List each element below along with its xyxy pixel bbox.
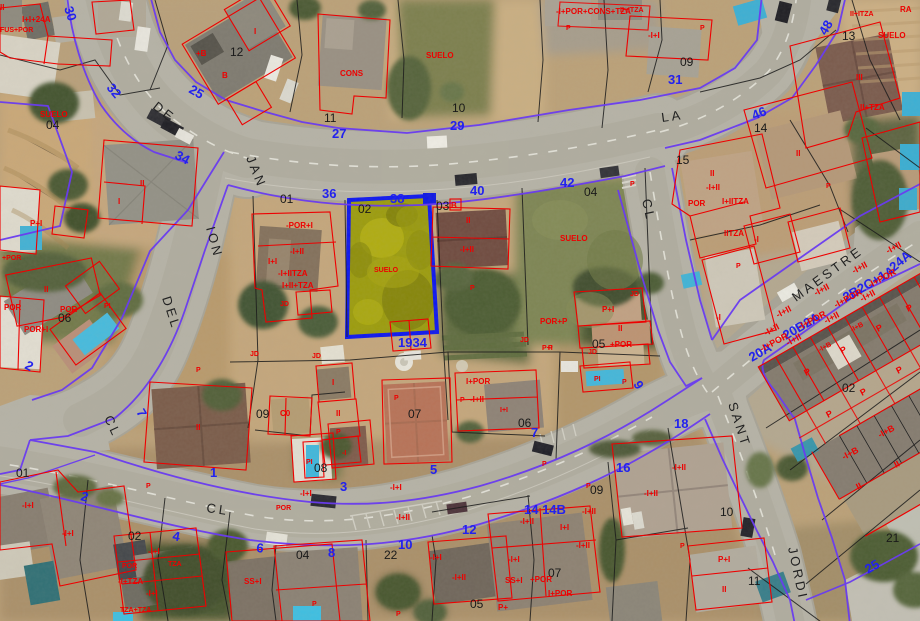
svg-text:II: II (618, 324, 622, 333)
svg-text:07: 07 (408, 407, 422, 421)
svg-text:POR: POR (688, 199, 706, 208)
svg-text:SS+I: SS+I (505, 576, 523, 585)
svg-text:02: 02 (842, 381, 856, 395)
svg-text:P: P (312, 601, 317, 608)
svg-text:1934: 1934 (398, 335, 428, 350)
svg-text:PI: PI (594, 376, 601, 383)
svg-text:03: 03 (436, 199, 450, 213)
svg-text:04: 04 (296, 548, 310, 562)
svg-text:II+TZA: II+TZA (860, 103, 885, 112)
svg-text:09: 09 (256, 407, 270, 421)
svg-text:8: 8 (328, 545, 335, 560)
svg-text:POR: POR (4, 303, 22, 312)
svg-text:JD: JD (280, 301, 289, 308)
svg-text:-POR+I: -POR+I (286, 221, 313, 230)
svg-text:21: 21 (886, 531, 900, 545)
svg-text:7: 7 (531, 425, 538, 440)
svg-text:+POR: +POR (2, 255, 21, 262)
svg-text:09: 09 (680, 55, 694, 69)
svg-text:14: 14 (754, 121, 768, 135)
svg-text:P: P (196, 367, 201, 374)
svg-text:P: P (146, 483, 151, 490)
svg-text:SUELO: SUELO (426, 51, 454, 60)
svg-text:II+ITZA: II+ITZA (620, 7, 644, 14)
svg-text:04: 04 (46, 118, 60, 132)
svg-text:01: 01 (16, 466, 30, 480)
svg-text:II: II (796, 149, 800, 158)
svg-text:02: 02 (128, 529, 142, 543)
svg-text:42: 42 (560, 175, 574, 190)
svg-text:16: 16 (616, 460, 630, 475)
svg-text:-I+I: -I+I (146, 589, 158, 598)
svg-text:-I+II: -I+II (644, 489, 658, 498)
svg-text:I+POR: I+POR (548, 589, 572, 598)
svg-text:TZA: TZA (168, 561, 182, 568)
svg-text:POR: POR (60, 305, 78, 314)
svg-text:B: B (451, 201, 457, 210)
svg-text:-I+II: -I+II (470, 395, 484, 404)
svg-text:PI: PI (306, 459, 313, 466)
svg-text:-I+II: -I+II (460, 245, 474, 254)
svg-text:II: II (466, 216, 470, 225)
svg-text:SS+I: SS+I (244, 577, 262, 586)
svg-text:P: P (680, 543, 685, 550)
svg-text:P: P (700, 25, 705, 32)
svg-text:+POR: +POR (530, 575, 552, 584)
svg-text:JD: JD (630, 291, 639, 298)
svg-text:P+I: P+I (718, 555, 730, 564)
svg-text:IITZA: IITZA (724, 229, 744, 238)
svg-text:10: 10 (398, 537, 412, 552)
svg-text:P: P (566, 25, 571, 32)
svg-text:-I+II: -I+II (706, 183, 720, 192)
svg-text:-I: -I (342, 450, 346, 457)
svg-text:B: B (222, 71, 228, 80)
svg-text:09: 09 (590, 483, 604, 497)
svg-text:II: II (196, 423, 200, 432)
svg-text:II: II (722, 585, 726, 594)
svg-text:10: 10 (720, 505, 734, 519)
svg-text:13: 13 (842, 29, 856, 43)
svg-text:RA: RA (900, 5, 912, 14)
svg-text:P: P (736, 263, 741, 270)
svg-text:18: 18 (674, 416, 688, 431)
svg-text:14 14B: 14 14B (524, 502, 566, 517)
svg-text:JD: JD (312, 353, 321, 360)
svg-text:01: 01 (280, 192, 294, 206)
svg-text:TZA+TZA: TZA+TZA (120, 607, 151, 614)
svg-text:-I: -I (754, 235, 759, 244)
svg-text:I: I (332, 378, 334, 387)
svg-text:II: II (0, 3, 4, 12)
svg-text:I+I+24A: I+I+24A (22, 15, 51, 24)
svg-text:PI: PI (104, 303, 111, 310)
svg-text:CL: CL (206, 500, 230, 518)
svg-text:II+ITZA: II+ITZA (850, 11, 874, 18)
svg-text:-I+II: -I+II (290, 247, 304, 256)
svg-text:36: 36 (322, 186, 336, 201)
svg-text:P: P (548, 345, 553, 352)
svg-text:-I+I: -I+I (648, 31, 660, 40)
svg-text:P: P (460, 397, 465, 404)
svg-text:III: III (856, 73, 863, 82)
svg-text:-I: -I (716, 313, 721, 322)
svg-text:P: P (542, 461, 547, 468)
svg-text:II: II (140, 179, 144, 188)
svg-text:+POR: +POR (610, 340, 632, 349)
svg-text:I: I (254, 27, 256, 36)
svg-text:I+II+TZA: I+II+TZA (282, 281, 314, 290)
svg-text:-I+I: -I+I (22, 501, 34, 510)
svg-text:-I+II: -I+II (520, 517, 534, 526)
svg-text:22: 22 (384, 548, 398, 562)
svg-text:P: P (630, 181, 635, 188)
svg-text:I+I: I+I (560, 523, 569, 532)
svg-text:15: 15 (676, 153, 690, 167)
svg-text:02: 02 (358, 202, 372, 216)
svg-text:SUELO: SUELO (878, 31, 906, 40)
svg-text:40: 40 (470, 183, 484, 198)
svg-text:-I+I: -I+I (148, 547, 160, 556)
svg-text:-I+TZA: -I+TZA (118, 577, 143, 586)
svg-text:-I+I: -I+I (300, 489, 312, 498)
svg-text:5: 5 (430, 462, 437, 477)
svg-text:POR: POR (276, 505, 291, 512)
svg-text:JD: JD (588, 349, 597, 356)
svg-text:-I+II: -I+II (576, 541, 590, 550)
svg-text:I: I (118, 197, 120, 206)
svg-text:P: P (394, 395, 399, 402)
svg-text:11: 11 (748, 574, 761, 588)
svg-text:-I+I: -I+I (390, 483, 402, 492)
svg-text:C0: C0 (280, 409, 291, 418)
svg-text:P: P (586, 483, 591, 490)
svg-text:-I+I: -I+I (430, 553, 442, 562)
svg-text:P: P (396, 611, 401, 618)
svg-text:CONS: CONS (340, 69, 364, 78)
svg-text:-I+II: -I+II (672, 463, 686, 472)
svg-text:10: 10 (452, 101, 466, 115)
svg-text:II: II (44, 285, 48, 294)
svg-text:I+I: I+I (268, 257, 277, 266)
svg-text:I+POR: I+POR (466, 377, 490, 386)
svg-text:27: 27 (332, 126, 346, 141)
svg-text:SUELO: SUELO (40, 110, 68, 119)
svg-text:JD: JD (520, 337, 529, 344)
svg-text:3: 3 (340, 479, 347, 494)
svg-text:SUELO: SUELO (560, 234, 588, 243)
svg-text:08: 08 (314, 461, 328, 475)
svg-text:29: 29 (450, 118, 464, 133)
svg-text:POR: POR (122, 563, 137, 570)
svg-text:12: 12 (230, 45, 244, 59)
svg-text:II: II (710, 169, 714, 178)
svg-text:P: P (826, 183, 831, 190)
svg-text:II: II (336, 409, 340, 418)
svg-text:06: 06 (518, 416, 532, 430)
svg-text:-I+II: -I+II (396, 513, 410, 522)
svg-text:POR+P: POR+P (540, 317, 568, 326)
svg-text:I+IITZA: I+IITZA (722, 197, 749, 206)
svg-text:04: 04 (584, 185, 598, 199)
svg-text:-I+II: -I+II (452, 573, 466, 582)
svg-text:P: P (622, 379, 627, 386)
svg-text:05: 05 (470, 597, 484, 611)
svg-text:+B: +B (196, 49, 207, 58)
svg-text:-I+I: -I+I (508, 555, 520, 564)
svg-text:P+: P+ (498, 603, 508, 612)
svg-text:I+I: I+I (500, 407, 508, 414)
svg-text:12: 12 (462, 522, 476, 537)
svg-text:P: P (336, 429, 341, 436)
svg-text:P+I: P+I (602, 305, 614, 314)
svg-text:POR+I: POR+I (24, 325, 48, 334)
svg-text:11: 11 (324, 111, 337, 125)
svg-text:FUS+POR: FUS+POR (0, 27, 33, 34)
svg-text:P+I: P+I (30, 219, 42, 228)
svg-text:-I+I: -I+I (62, 529, 74, 538)
svg-text:SUELO: SUELO (374, 267, 399, 274)
svg-text:JD: JD (250, 351, 259, 358)
svg-text:31: 31 (668, 72, 682, 87)
svg-text:LA: LA (660, 107, 684, 125)
svg-text:38: 38 (390, 191, 404, 206)
svg-text:P: P (470, 285, 475, 292)
svg-text:-I+IITZA: -I+IITZA (278, 269, 308, 278)
svg-text:1: 1 (210, 465, 217, 480)
svg-text:-I+II: -I+II (582, 507, 596, 516)
